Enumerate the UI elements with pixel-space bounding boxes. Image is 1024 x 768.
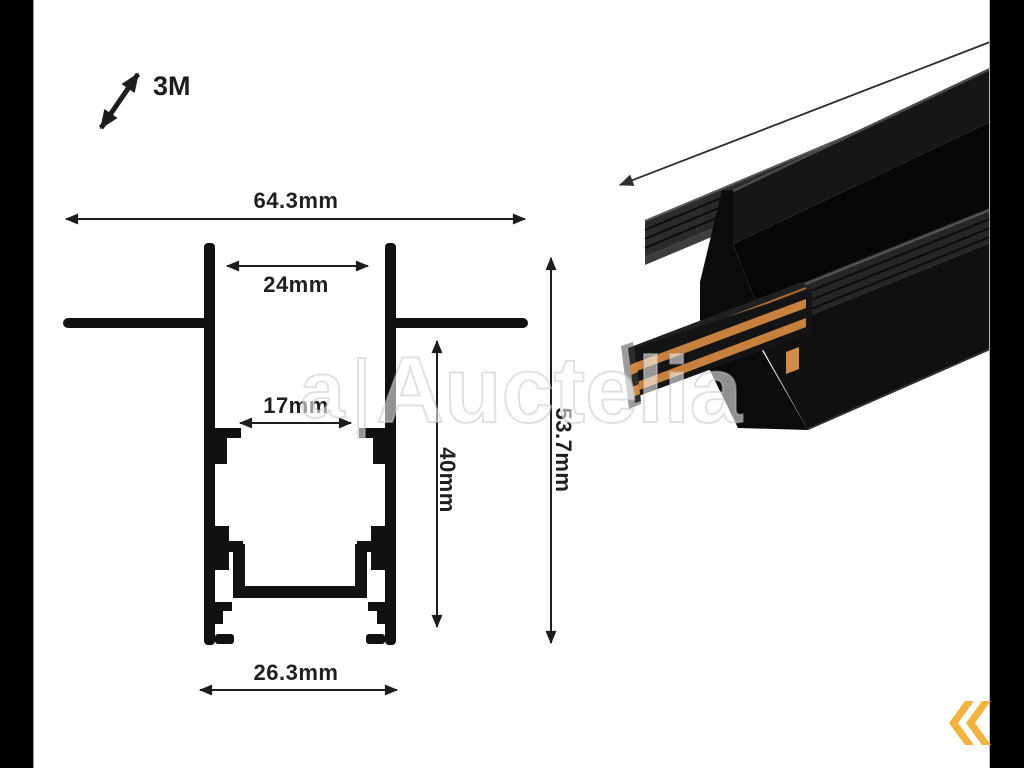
- length-3m-arrow: [101, 74, 138, 128]
- profile-left-flange: [63, 318, 215, 328]
- letterbox-band-left: [0, 0, 34, 768]
- letterbox-band-right: [989, 0, 1024, 768]
- inner-width-label: 17mm: [221, 393, 371, 419]
- opening-width-label: 24mm: [221, 272, 371, 298]
- profile-upper-right-hook: [359, 428, 385, 464]
- profile-bottom-right-tooth: [368, 602, 385, 624]
- length-label: 3M: [153, 71, 191, 102]
- overall-height-label: 53.7mm: [550, 395, 576, 505]
- profile-bottom-left-foot: [215, 634, 234, 644]
- recess-depth-label: 40mm: [434, 425, 460, 535]
- base-width-label: 26.3mm: [221, 660, 371, 686]
- product-listing-image: 3M 64.3mm 24mm 17mm 40mm 53.7mm 26.3mm a…: [0, 0, 1024, 768]
- chevron-left-2: [966, 701, 991, 745]
- profile-bottom-left-tooth: [215, 602, 232, 624]
- technical-drawing-canvas: [0, 0, 1024, 768]
- profile-left-wall: [204, 243, 215, 645]
- profile-bottom-channel: [233, 544, 367, 598]
- profile-right-wall: [385, 243, 396, 645]
- profile-right-flange: [385, 318, 528, 328]
- overall-width-label: 64.3mm: [221, 188, 371, 214]
- profile-upper-left-hook: [215, 428, 241, 464]
- profile-bottom-right-foot: [366, 634, 385, 644]
- product-photo: [620, 42, 990, 430]
- double-chevron-left-icon[interactable]: [941, 699, 993, 747]
